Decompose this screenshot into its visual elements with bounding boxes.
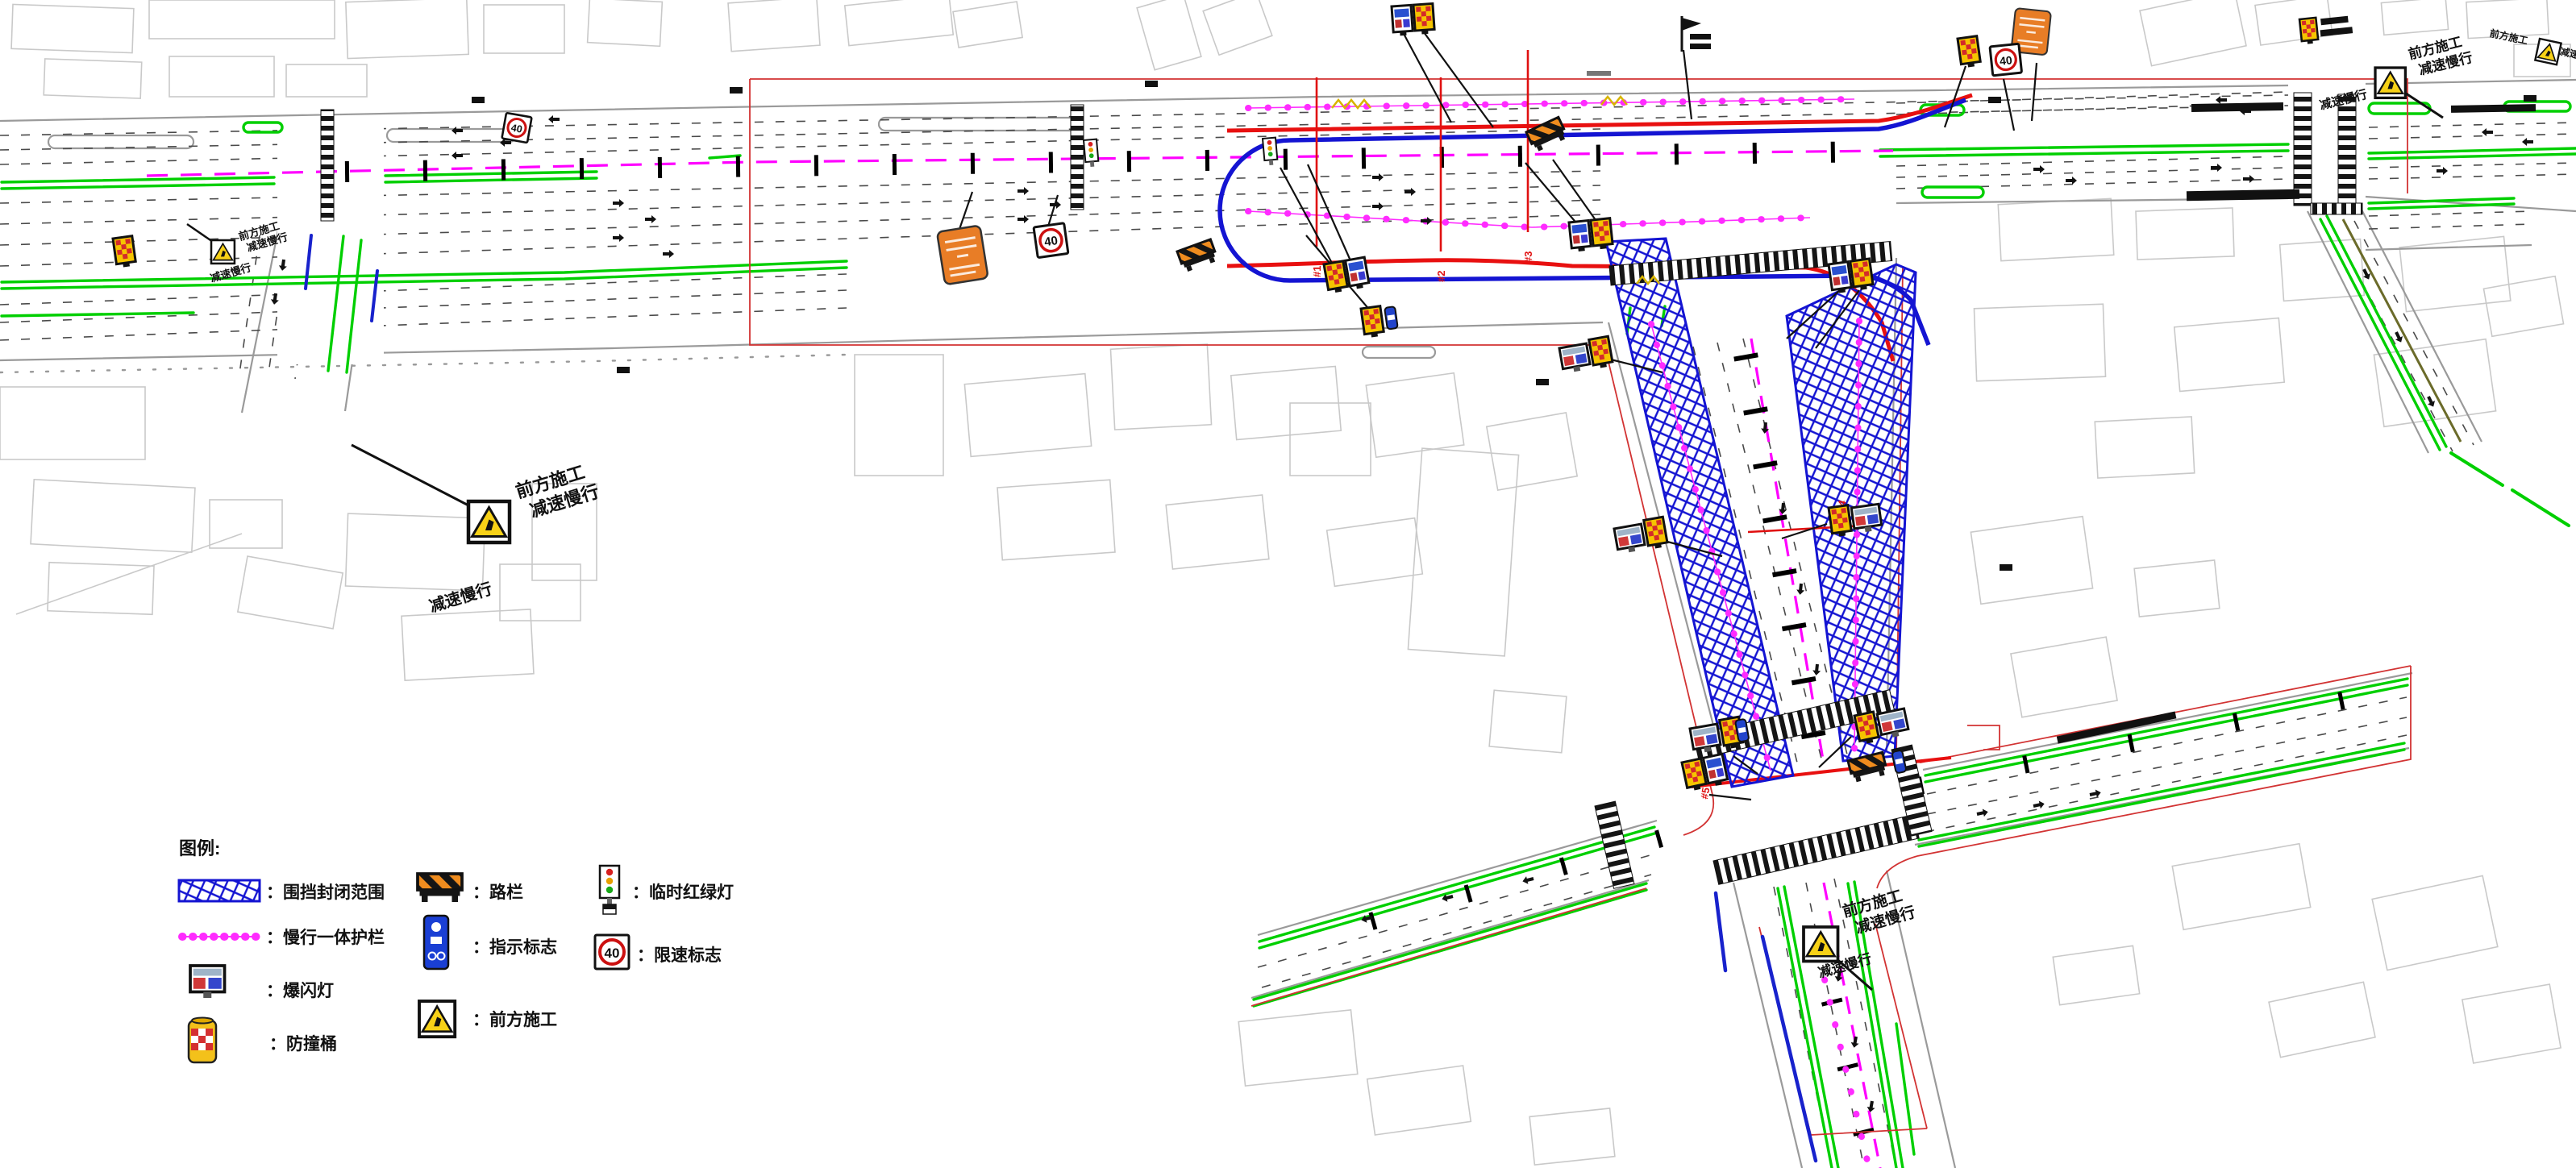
legend-title: 图例: — [179, 838, 220, 858]
enclosure-icon — [179, 880, 260, 901]
barrel-icon — [189, 1018, 216, 1063]
legend-label: 围挡封闭范围 — [283, 883, 385, 902]
legend-label: 临时红绿灯 — [649, 883, 734, 902]
section-marker-3: #3 — [1522, 251, 1534, 263]
speed-limit-sign: 40 — [1034, 223, 1068, 258]
svg-text:：前方施工: ：前方施工 — [472, 1010, 557, 1029]
diagonal-road-median — [2343, 219, 2461, 442]
construction-warning-icon — [419, 1001, 455, 1037]
green-markings — [2, 102, 2576, 1168]
legend-item-speed: 40 ：限速标志 — [595, 935, 722, 969]
guide-sign-icon — [424, 916, 448, 969]
traffic-plan-canvas: #1 #2 #3 #4 #5 — [0, 0, 2576, 1168]
legend-item-construction: ：前方施工 — [419, 1001, 557, 1037]
legend-item-guide: ：指示标志 — [424, 916, 557, 969]
legend: 图例: ：围挡封闭范围 ：慢行一体护栏 ：爆闪灯 ：防撞桶 ：路栏 — [179, 838, 734, 1062]
callout-line2: 减速慢行 — [2559, 45, 2576, 65]
legend-item-enclosure: ：围挡封闭范围 — [179, 880, 385, 902]
legend-item-strobe: ：爆闪灯 — [190, 966, 334, 1000]
svg-text:40: 40 — [1043, 234, 1059, 249]
svg-text:40: 40 — [510, 122, 523, 135]
intersection-gaps — [277, 81, 2364, 364]
lane-markings — [0, 92, 2576, 1168]
svg-text:：临时红绿灯: ：临时红绿灯 — [632, 883, 734, 902]
legend-label: 前方施工 — [489, 1010, 557, 1029]
speed-limit-sign: 40 — [501, 113, 531, 143]
speed-limit-icon: 40 — [595, 935, 629, 969]
legend-label: 防撞桶 — [286, 1034, 337, 1054]
callout-side: 减速慢行 — [209, 261, 252, 285]
heavy-bars — [472, 71, 2536, 743]
section-marker-1: #1 — [1311, 266, 1323, 277]
legend-label: 限速标志 — [654, 946, 722, 965]
barrier-icon — [418, 874, 462, 902]
legend-item-barrel: ：防撞桶 — [189, 1018, 337, 1063]
strobe-icon — [190, 966, 225, 998]
callout-side: 减速慢行 — [427, 579, 495, 616]
svg-text:：指示标志: ：指示标志 — [472, 937, 557, 957]
temp-signal-icon — [600, 866, 619, 914]
legend-label: 指示标志 — [489, 937, 557, 957]
svg-text:：限速标志: ：限速标志 — [637, 946, 722, 965]
svg-text:40: 40 — [605, 946, 620, 961]
section-markers: #1 #2 #3 #4 #5 — [1311, 50, 1864, 800]
plan-drawing: #1 #2 #3 #4 #5 — [0, 0, 2576, 1168]
svg-text:40: 40 — [1999, 53, 2012, 68]
svg-text:：慢行一体护栏: ：慢行一体护栏 — [266, 928, 385, 947]
legend-label: 爆闪灯 — [283, 982, 334, 1000]
legend-label: 路栏 — [489, 883, 523, 902]
speed-limit-sign: 40 — [1990, 44, 2022, 76]
svg-text:：爆闪灯: ：爆闪灯 — [266, 982, 334, 1000]
zebra-crossings — [321, 93, 2362, 888]
svg-text:：路栏: ：路栏 — [472, 883, 523, 902]
legend-item-signal: ：临时红绿灯 — [600, 866, 734, 914]
legend-item-barrier: ：路栏 — [418, 874, 523, 902]
svg-text:：防撞桶: ：防撞桶 — [269, 1034, 337, 1054]
svg-text:：围挡封闭范围: ：围挡封闭范围 — [266, 883, 385, 902]
callout-line1: 前方施工 — [2489, 27, 2529, 47]
legend-label: 慢行一体护栏 — [283, 928, 385, 947]
legend-item-guardrail: ：慢行一体护栏 — [182, 928, 385, 947]
road-edges — [0, 80, 2576, 1168]
section-marker-2: #2 — [1435, 271, 1447, 282]
